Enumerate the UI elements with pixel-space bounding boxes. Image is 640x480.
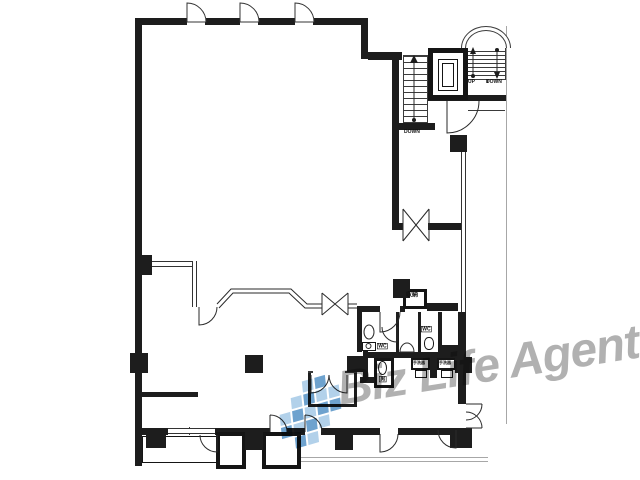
structural-column bbox=[130, 353, 148, 373]
logo-tile bbox=[291, 395, 303, 409]
wall-segment bbox=[438, 312, 442, 345]
logo-tile bbox=[295, 435, 307, 449]
logo-tile bbox=[306, 418, 318, 432]
boundary-line bbox=[300, 461, 488, 462]
logo-tile bbox=[316, 388, 328, 402]
wall-segment bbox=[313, 18, 368, 25]
inner-stair-treads bbox=[403, 55, 428, 123]
wall-segment bbox=[392, 52, 399, 230]
wall-segment bbox=[205, 18, 240, 25]
wall-segment bbox=[142, 392, 198, 397]
wall-segment bbox=[258, 18, 295, 25]
logo-tile bbox=[307, 431, 319, 445]
logo-tile bbox=[317, 401, 329, 415]
structural-column bbox=[146, 430, 166, 448]
outer-stair-treads bbox=[466, 46, 506, 80]
logo-tile bbox=[293, 421, 305, 435]
wall-segment bbox=[427, 303, 458, 311]
bottom-door-3 bbox=[380, 434, 398, 452]
wall-segment bbox=[397, 223, 403, 230]
logo-tile bbox=[318, 414, 330, 428]
logo-tile bbox=[281, 425, 293, 439]
top-door-3 bbox=[295, 3, 314, 22]
up-label: UP bbox=[468, 79, 475, 84]
double-swing-door-1 bbox=[403, 209, 429, 241]
powder-basin bbox=[364, 325, 374, 339]
wall-segment bbox=[396, 312, 399, 352]
window-line bbox=[168, 428, 215, 434]
logo-tile bbox=[305, 405, 317, 419]
wall-segment bbox=[361, 18, 368, 59]
top-door-1 bbox=[187, 3, 206, 22]
partition-door bbox=[199, 307, 217, 325]
bay-partition-line-1 bbox=[217, 289, 322, 304]
floorplan-image: DOWNUPDOWN収納WCWC男手洗器手洗器 Biz Life Agent bbox=[0, 0, 640, 480]
wall-segment bbox=[428, 223, 465, 230]
entrance-vestibule-a bbox=[216, 432, 246, 469]
top-door-2 bbox=[240, 3, 259, 22]
structural-column bbox=[135, 255, 152, 275]
storage-label: 収納 bbox=[406, 292, 418, 298]
mid-wc-door bbox=[382, 327, 397, 342]
wall-segment bbox=[135, 18, 187, 25]
elevator-car-inner bbox=[442, 63, 454, 87]
window-line bbox=[152, 261, 197, 267]
logo-tile bbox=[303, 392, 315, 406]
boundary-line bbox=[300, 457, 488, 458]
window-line bbox=[192, 261, 197, 307]
partition-link bbox=[348, 304, 357, 308]
structural-column bbox=[245, 355, 263, 373]
logo-tile bbox=[314, 375, 326, 389]
stair-down-label: DOWN bbox=[404, 129, 420, 134]
wc-label-2: WC bbox=[377, 343, 388, 349]
structural-column bbox=[245, 430, 263, 450]
powder-sink bbox=[362, 342, 376, 351]
wall-segment bbox=[398, 428, 452, 435]
double-swing-door-2 bbox=[322, 293, 348, 315]
bay-partition-line-2 bbox=[219, 293, 322, 308]
thin-line bbox=[468, 110, 505, 111]
structural-column bbox=[450, 428, 472, 448]
wc-label-1: WC bbox=[421, 326, 432, 332]
logo-tile bbox=[302, 378, 314, 392]
window-line bbox=[461, 152, 466, 312]
logo-tile bbox=[280, 412, 292, 426]
structural-column bbox=[450, 135, 467, 152]
thin-line bbox=[308, 371, 313, 373]
logo-tile bbox=[292, 408, 304, 422]
wall-segment bbox=[135, 18, 142, 466]
right-double-door bbox=[466, 404, 482, 428]
stair-hall-door bbox=[447, 101, 479, 133]
down-label: DOWN bbox=[486, 79, 502, 84]
